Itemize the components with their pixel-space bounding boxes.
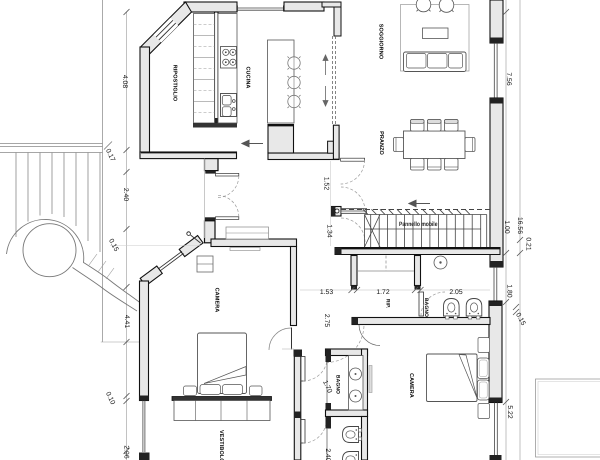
svg-text:4.41: 4.41 (123, 315, 130, 328)
svg-text:7.56: 7.56 (505, 72, 512, 85)
svg-text:RIPOSTIGLIO: RIPOSTIGLIO (172, 65, 178, 102)
svg-text:2.40: 2.40 (324, 448, 331, 460)
svg-text:Pannello mobile: Pannello mobile (399, 221, 438, 228)
svg-text:1.34: 1.34 (326, 224, 333, 237)
svg-text:2.75: 2.75 (323, 314, 330, 327)
svg-text:0.21: 0.21 (525, 237, 532, 250)
svg-text:RIP.: RIP. (385, 299, 391, 309)
svg-text:CAMERA: CAMERA (214, 288, 220, 313)
svg-text:16.56: 16.56 (516, 217, 523, 234)
svg-text:2.40: 2.40 (122, 188, 129, 201)
svg-text:4.08: 4.08 (121, 75, 128, 88)
svg-text:CUCINA: CUCINA (245, 66, 251, 88)
svg-text:1.00: 1.00 (503, 220, 510, 233)
svg-text:CAMERA: CAMERA (408, 373, 414, 398)
svg-text:1.53: 1.53 (320, 289, 333, 296)
svg-text:VESTIBOLO: VESTIBOLO (218, 430, 224, 460)
svg-text:BAGNO: BAGNO (423, 298, 429, 317)
svg-text:1.80: 1.80 (506, 284, 513, 297)
svg-text:BAGNO: BAGNO (335, 375, 341, 394)
svg-text:SOGGIORNO: SOGGIORNO (378, 24, 384, 60)
svg-text:2.05: 2.05 (449, 289, 462, 296)
svg-text:1.52: 1.52 (323, 177, 330, 190)
svg-text:2.96: 2.96 (123, 445, 130, 458)
svg-text:1.72: 1.72 (376, 289, 389, 296)
svg-text:PRANZO: PRANZO (378, 131, 384, 155)
svg-text:5.22: 5.22 (506, 405, 513, 418)
